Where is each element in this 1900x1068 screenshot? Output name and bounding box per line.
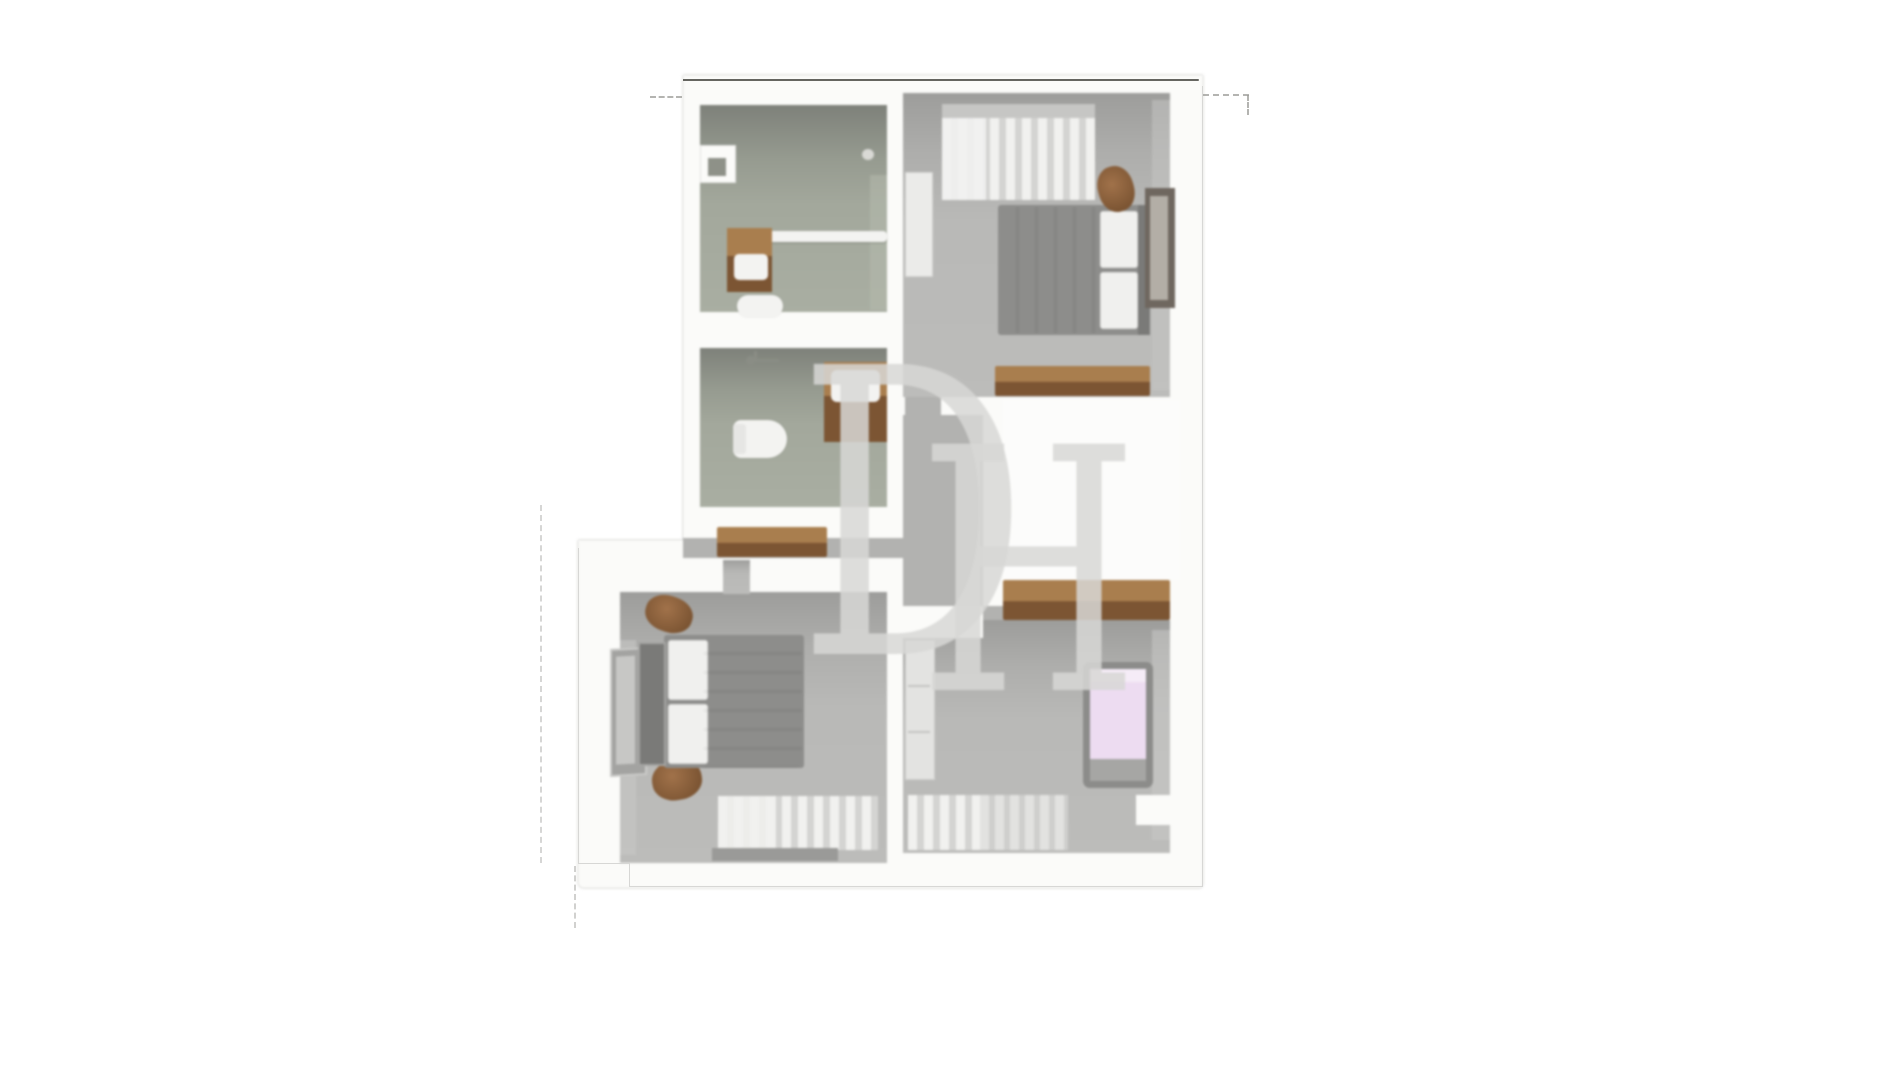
bedroom-br-sill-step (1136, 795, 1200, 825)
watermark-letter-h: H (918, 404, 1139, 742)
shower-room-toilet (737, 295, 783, 317)
bedroom-tr-pillow-1 (1100, 211, 1138, 268)
wall-niche (700, 145, 736, 183)
bedroom-bl-pillow-1 (668, 640, 708, 700)
shower-fixture-icon (746, 349, 782, 371)
bathroom-toilet (733, 420, 787, 458)
bedroom-bl-bed (638, 633, 804, 770)
shower-sink (734, 254, 768, 280)
bedroom-bl-headboard (638, 642, 666, 766)
bedroom-tr-pillow-2 (1100, 272, 1138, 329)
bedroom-bl-duvet (704, 636, 802, 767)
wardrobe-mirror (1150, 196, 1168, 300)
curtain-white-fold (718, 796, 776, 850)
wall-spot (862, 149, 874, 160)
bedroom-tr-window-curtains (942, 118, 1095, 200)
floor-plan-scene: D H (0, 0, 1900, 1068)
bathroom-toilet-cistern (733, 424, 746, 454)
bedroom-bl-wardrobe-panel (616, 656, 635, 765)
bedroom-bl-pillow-2 (668, 704, 708, 764)
shower-vanity-top (727, 228, 772, 256)
bedroom-tr-wardrobe (1145, 188, 1175, 308)
doorway-bottom-left-bedroom (723, 560, 750, 594)
bedroom-bl-curtain-rod (712, 848, 838, 861)
bedroom-tr-shelf-unit (905, 172, 933, 277)
shower-vanity-cabinet (727, 228, 772, 292)
wall-niche-hole (708, 158, 726, 176)
curtain-white-fold (942, 118, 986, 200)
bedroom-br-window-sheer (980, 795, 1068, 850)
bedroom-bl-window-curtains (718, 796, 878, 850)
bedroom-br-window-curtains (908, 795, 980, 850)
render-layer: D H (0, 0, 1900, 1068)
